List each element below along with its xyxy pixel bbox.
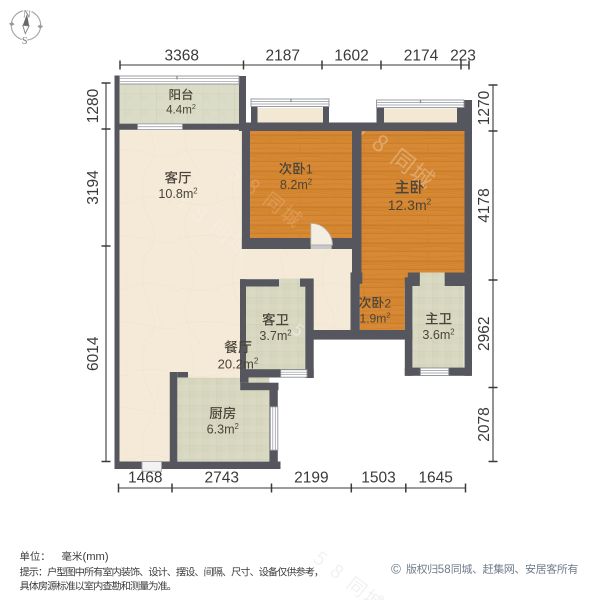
svg-text:8.2m: 8.2m xyxy=(280,178,308,192)
svg-text:1645: 1645 xyxy=(418,470,452,487)
svg-text:2: 2 xyxy=(450,327,454,336)
svg-text:3.6m: 3.6m xyxy=(422,328,450,342)
svg-text:1: 1 xyxy=(306,163,313,177)
svg-text:2187: 2187 xyxy=(266,48,300,65)
svg-text:©: © xyxy=(391,562,401,577)
svg-text:1.9m: 1.9m xyxy=(359,311,386,325)
svg-text:2: 2 xyxy=(308,177,312,186)
svg-text:2: 2 xyxy=(193,186,197,195)
svg-text:2199: 2199 xyxy=(294,470,328,487)
svg-text:4178: 4178 xyxy=(476,188,493,222)
svg-text:2743: 2743 xyxy=(204,470,238,487)
svg-text:12.3m: 12.3m xyxy=(388,197,427,213)
svg-text:2: 2 xyxy=(254,356,259,365)
svg-text:2: 2 xyxy=(234,422,238,431)
svg-text:2078: 2078 xyxy=(476,407,493,441)
svg-text:2962: 2962 xyxy=(476,317,493,351)
svg-text:6.3m: 6.3m xyxy=(207,423,235,437)
svg-text:(mm): (mm) xyxy=(83,551,109,563)
svg-text:2: 2 xyxy=(192,102,196,111)
svg-text:2174: 2174 xyxy=(404,48,439,65)
svg-text:1503: 1503 xyxy=(361,470,395,487)
svg-text:1270: 1270 xyxy=(476,90,493,125)
svg-text:3194: 3194 xyxy=(85,170,102,205)
svg-text:58: 58 xyxy=(438,564,451,576)
svg-text:S: S xyxy=(21,36,28,47)
svg-text:2: 2 xyxy=(426,197,431,207)
svg-text:2: 2 xyxy=(386,311,390,320)
svg-text:4.4m: 4.4m xyxy=(166,104,192,117)
svg-text:2: 2 xyxy=(384,296,391,310)
svg-text:223: 223 xyxy=(450,48,476,65)
svg-text:1602: 1602 xyxy=(334,48,368,65)
svg-text:1468: 1468 xyxy=(128,470,162,487)
svg-text:1280: 1280 xyxy=(85,88,102,123)
svg-text:2: 2 xyxy=(287,328,291,337)
svg-text:3368: 3368 xyxy=(165,48,199,65)
svg-text:10.8m: 10.8m xyxy=(158,187,193,201)
svg-text:3.7m: 3.7m xyxy=(259,329,287,343)
svg-text:6014: 6014 xyxy=(85,336,102,371)
svg-text:20.2m: 20.2m xyxy=(218,356,254,371)
